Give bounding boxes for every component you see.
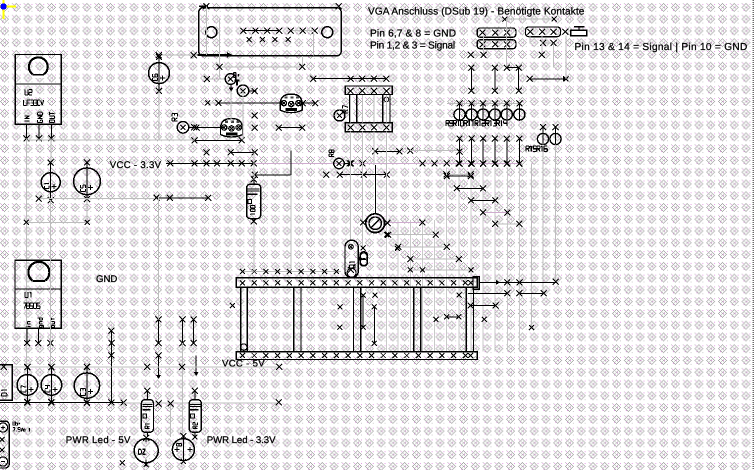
svg-text:Pin 1,2 & 3 = Signal: Pin 1,2 & 3 = Signal xyxy=(370,41,455,52)
svg-text:Pin 6,7 & 8 = GND: Pin 6,7 & 8 = GND xyxy=(370,29,456,40)
svg-text:PWR Led - 3.3V: PWR Led - 3.3V xyxy=(207,435,276,446)
svg-text:PWR Led - 5V: PWR Led - 5V xyxy=(66,435,131,446)
svg-text:VCC - 3.3V: VCC - 3.3V xyxy=(110,160,162,171)
svg-text:GND: GND xyxy=(96,274,117,285)
svg-text:VGA Anschluss (DSub 19) - Benö: VGA Anschluss (DSub 19) - Benötigte Kont… xyxy=(368,6,585,17)
svg-text:Pin 13 & 14 = Signal | Pin 10: Pin 13 & 14 = Signal | Pin 10 = GND xyxy=(575,42,748,53)
